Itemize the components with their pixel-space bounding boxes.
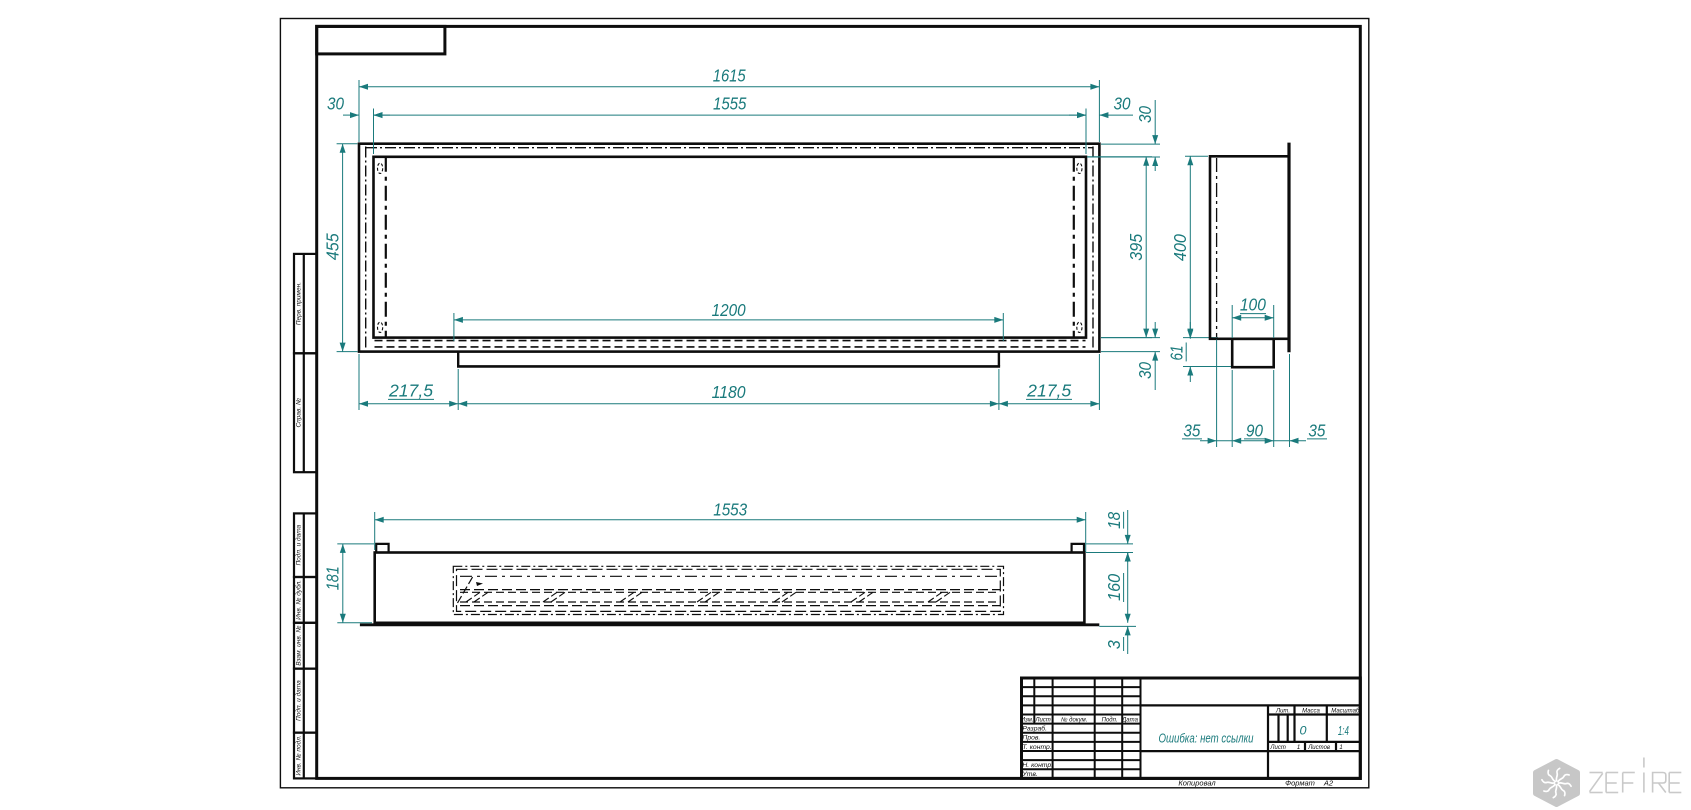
svg-text:30: 30 [1135, 106, 1155, 123]
svg-text:18: 18 [1104, 512, 1124, 529]
svg-text:Пров.: Пров. [1022, 735, 1040, 742]
svg-text:Инв. № дубл.: Инв. № дубл. [295, 580, 303, 620]
svg-text:Перв. примен.: Перв. примен. [296, 282, 303, 325]
svg-text:Масса: Масса [1302, 708, 1320, 714]
svg-text:Разраб.: Разраб. [1022, 725, 1047, 733]
svg-text:Лит.: Лит. [1275, 708, 1290, 714]
svg-text:Масштаб: Масштаб [1331, 708, 1360, 714]
svg-text:181: 181 [323, 566, 343, 590]
svg-text:1200: 1200 [712, 300, 746, 320]
svg-text:Подп. и дата: Подп. и дата [295, 524, 303, 565]
svg-text:Утв.: Утв. [1021, 771, 1038, 778]
svg-text:61: 61 [1167, 346, 1187, 361]
svg-text:Копировал: Копировал [1178, 779, 1216, 788]
svg-text:3: 3 [1104, 640, 1124, 649]
svg-text:Т. контр.: Т. контр. [1022, 744, 1051, 751]
svg-text:90: 90 [1246, 420, 1263, 440]
svg-text:1:4: 1:4 [1338, 723, 1349, 738]
svg-text:Формат: Формат [1285, 779, 1315, 788]
svg-text:455: 455 [322, 233, 342, 260]
svg-text:1180: 1180 [712, 382, 746, 402]
svg-text:Взам. инв. №: Взам. инв. № [296, 626, 303, 666]
svg-text:Инв. № подл.: Инв. № подл. [295, 735, 303, 776]
svg-text:Н. контр.: Н. контр. [1022, 762, 1053, 769]
svg-text:395: 395 [1126, 234, 1146, 261]
svg-text:Листов: Листов [1307, 745, 1330, 751]
svg-text:1615: 1615 [713, 66, 746, 86]
svg-text:Дата: Дата [1121, 718, 1138, 724]
svg-text:Ошибка: нет ссылки: Ошибка: нет ссылки [1159, 732, 1254, 746]
svg-text:1555: 1555 [713, 94, 747, 114]
svg-text:Справ. №: Справ. № [296, 398, 303, 428]
svg-text:№ докум.: № докум. [1061, 717, 1087, 724]
svg-text:1: 1 [1297, 745, 1300, 751]
svg-text:1553: 1553 [713, 499, 747, 519]
svg-text:Изм.: Изм. [1021, 718, 1034, 724]
svg-text:30: 30 [327, 94, 344, 114]
svg-text:30: 30 [1114, 94, 1131, 114]
svg-text:217,5: 217,5 [1026, 380, 1071, 400]
svg-text:1: 1 [1339, 745, 1342, 751]
svg-text:Подп. и дата: Подп. и дата [295, 680, 303, 721]
svg-text:Лист: Лист [1034, 718, 1050, 724]
svg-text:0: 0 [1300, 723, 1307, 737]
svg-text:217,5: 217,5 [388, 380, 433, 400]
svg-text:Подп.: Подп. [1102, 718, 1118, 724]
svg-text:400: 400 [1170, 234, 1190, 261]
svg-text:160: 160 [1104, 574, 1124, 601]
svg-text:30: 30 [1135, 362, 1155, 379]
svg-text:А2: А2 [1323, 779, 1334, 788]
svg-text:35: 35 [1183, 420, 1200, 440]
svg-text:Лист: Лист [1269, 745, 1285, 751]
svg-text:35: 35 [1308, 420, 1325, 440]
svg-text:100: 100 [1240, 295, 1266, 315]
